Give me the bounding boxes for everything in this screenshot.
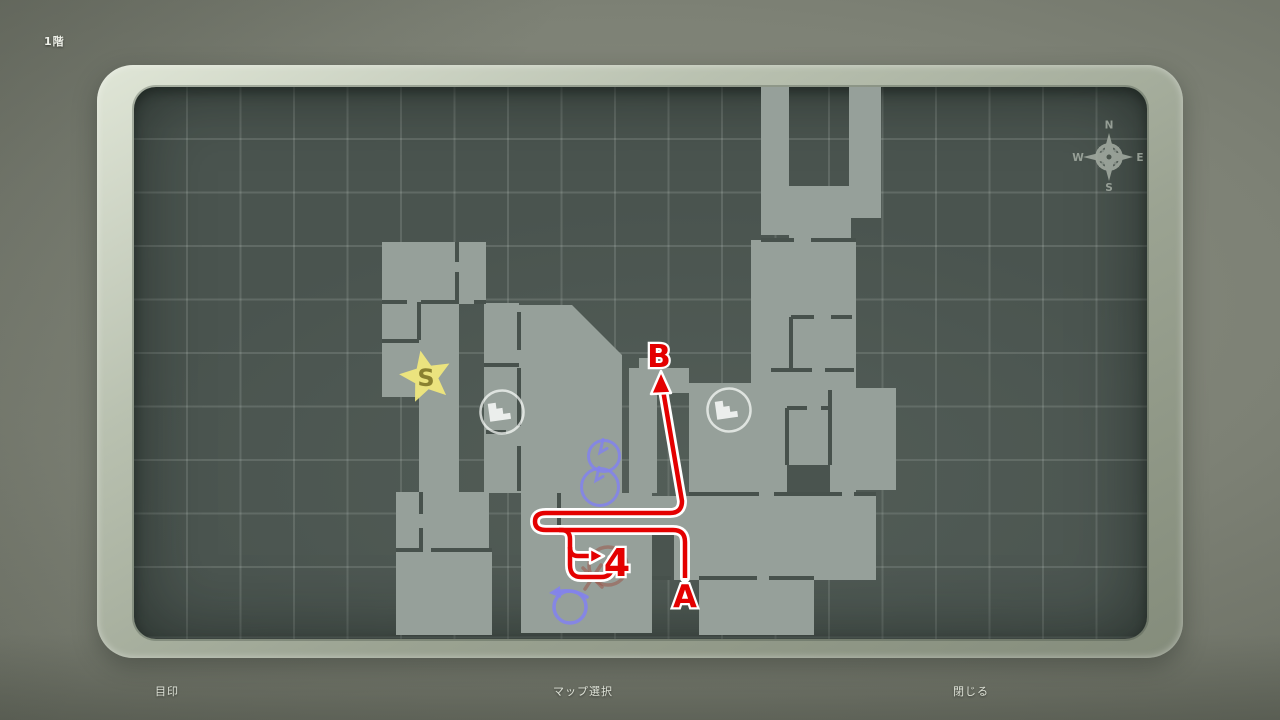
svg-text:E: E — [1136, 152, 1143, 164]
svg-text:N: N — [1105, 120, 1114, 132]
map-screen: 1階 SAB4NESW 目印 マップ選択 閉じる — [0, 0, 1280, 720]
room-shape — [699, 580, 814, 635]
start-marker-letter: S — [417, 364, 434, 392]
room-shape — [761, 87, 789, 235]
room-shape — [629, 393, 657, 493]
svg-text:S: S — [1105, 182, 1113, 194]
menu-item-map-select[interactable]: マップ選択 — [553, 683, 613, 699]
room-shape — [519, 305, 622, 493]
courtyard-notch — [652, 528, 674, 580]
floor-plan-svg: SAB4NESW — [134, 87, 1147, 639]
floor-label: 1階 — [44, 33, 65, 49]
menu-item-marker[interactable]: 目印 — [155, 683, 179, 699]
courtyard-notch — [787, 465, 830, 493]
svg-text:W: W — [1072, 152, 1084, 164]
route-label-B: B — [647, 339, 671, 375]
room-shape — [689, 383, 751, 495]
map-surface[interactable]: SAB4NESW — [134, 87, 1147, 639]
room-shape — [419, 397, 459, 493]
bottom-menu: 目印 マップ選択 閉じる — [0, 683, 1280, 703]
route-label-4: 4 — [604, 541, 630, 585]
room-shape — [789, 186, 851, 242]
route-label-A: A — [673, 579, 697, 615]
menu-item-close[interactable]: 閉じる — [953, 683, 989, 699]
room-shape — [854, 388, 896, 490]
room-shape — [396, 492, 489, 552]
room-shape — [849, 87, 881, 218]
map-panel: SAB4NESW — [97, 65, 1183, 658]
room-shape — [396, 552, 492, 635]
room-shape — [484, 303, 519, 493]
compass-rose-icon: NESW — [1072, 120, 1143, 195]
room-shape — [382, 242, 486, 304]
